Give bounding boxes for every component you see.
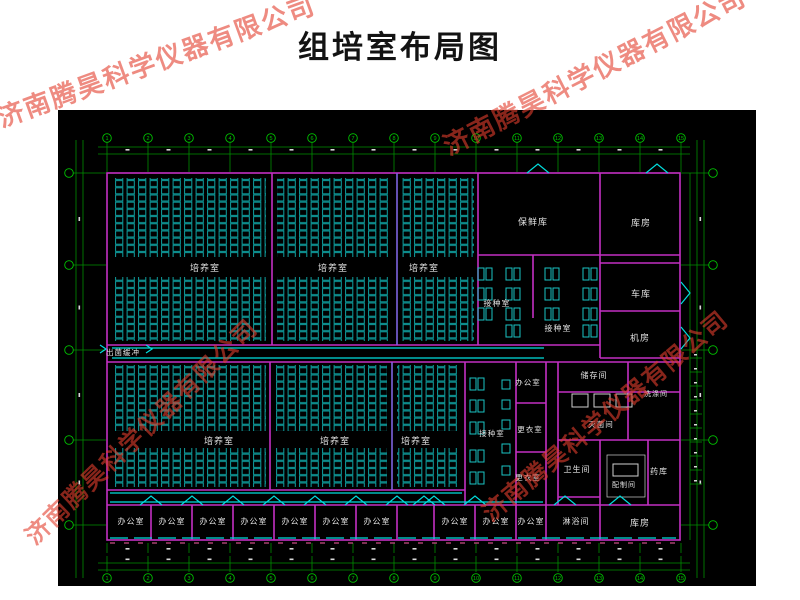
room-label: 洗涤间	[644, 389, 668, 398]
page-title: 组培室布局图	[0, 22, 800, 67]
grid-bubble-number: 6	[310, 576, 313, 582]
grid-bubble-number: 10	[473, 136, 479, 142]
room-label: 库房	[631, 217, 651, 228]
room-label: 办公室	[282, 516, 309, 526]
grid-bubble-number: 5	[269, 136, 272, 142]
room-label: 灭菌间	[588, 419, 614, 429]
room-label: 储存间	[581, 370, 608, 380]
room-label: 办公室	[364, 516, 391, 526]
grid-bubble-number: 4	[228, 136, 231, 142]
room-label: 办公室	[442, 516, 469, 526]
room-label: 药库	[650, 466, 668, 476]
room-label: 更衣室	[517, 424, 543, 434]
grid-bubble-number: 2	[146, 576, 149, 582]
room-label: 接种室	[484, 298, 511, 308]
room-label: 卫生间	[564, 464, 591, 474]
grid-bubble-number: 13	[596, 136, 602, 142]
grid-bubble-number: 15	[678, 136, 684, 142]
room-label: 保鲜库	[518, 216, 548, 227]
grid-bubble-number: 14	[637, 136, 643, 142]
grid-bubble-number: 12	[555, 576, 561, 582]
room-label: 办公室	[200, 516, 227, 526]
grid-bubble-number: 14	[637, 576, 643, 582]
room-label: 接种室	[479, 428, 505, 438]
room-label: 更衣室	[515, 472, 541, 482]
grid-bubble-number: 10	[473, 576, 479, 582]
room-label: 办公室	[515, 377, 541, 387]
floorplan-svg: 1122334455667788991010111112121313141415…	[0, 0, 800, 600]
room-label: 培养室	[318, 262, 348, 273]
grid-bubble-number: 12	[555, 136, 561, 142]
room-label: 培养室	[409, 262, 439, 273]
grid-bubble-number: 9	[433, 136, 436, 142]
room-label: 机房	[630, 332, 650, 343]
grid-bubble-number: 3	[187, 136, 190, 142]
grid-bubble-number: 7	[351, 136, 354, 142]
grid-bubble-number: 3	[187, 576, 190, 582]
grid-bubble-number: 15	[678, 576, 684, 582]
grid-bubble-number: 7	[351, 576, 354, 582]
room-label: 办公室	[323, 516, 350, 526]
room-label: 办公室	[159, 516, 186, 526]
room-label: 培养室	[320, 435, 350, 446]
room-label: 车库	[631, 288, 651, 299]
room-label: 培养室	[190, 262, 220, 273]
room-label: 办公室	[241, 516, 268, 526]
grid-bubble-number: 2	[146, 136, 149, 142]
grid-bubble-number: 9	[433, 576, 436, 582]
room-label: 培养室	[204, 435, 234, 446]
grid-bubble-number: 11	[514, 136, 520, 142]
grid-bubble-number: 13	[596, 576, 602, 582]
room-label: 办公室	[118, 516, 145, 526]
room-label: 淋浴间	[563, 516, 590, 526]
room-label: 办公室	[483, 516, 510, 526]
room-label: 配制间	[612, 480, 636, 489]
room-label: 接种室	[545, 323, 572, 333]
grid-bubble-number: 1	[105, 136, 108, 142]
room-label: 办公室	[518, 516, 545, 526]
grid-bubble-number: 4	[228, 576, 231, 582]
room-label: 库房	[630, 517, 650, 528]
grid-bubble-number: 5	[269, 576, 272, 582]
room-label: 培养室	[401, 435, 431, 446]
page: 组培室布局图 112233445566778899101011111212131…	[0, 0, 800, 600]
grid-bubble-number: 8	[392, 136, 395, 142]
grid-bubble-number: 1	[105, 576, 108, 582]
grid-bubble-number: 6	[310, 136, 313, 142]
room-label: 出菌缓冲	[106, 347, 140, 357]
grid-bubble-number: 11	[514, 576, 520, 582]
grid-bubble-number: 8	[392, 576, 395, 582]
